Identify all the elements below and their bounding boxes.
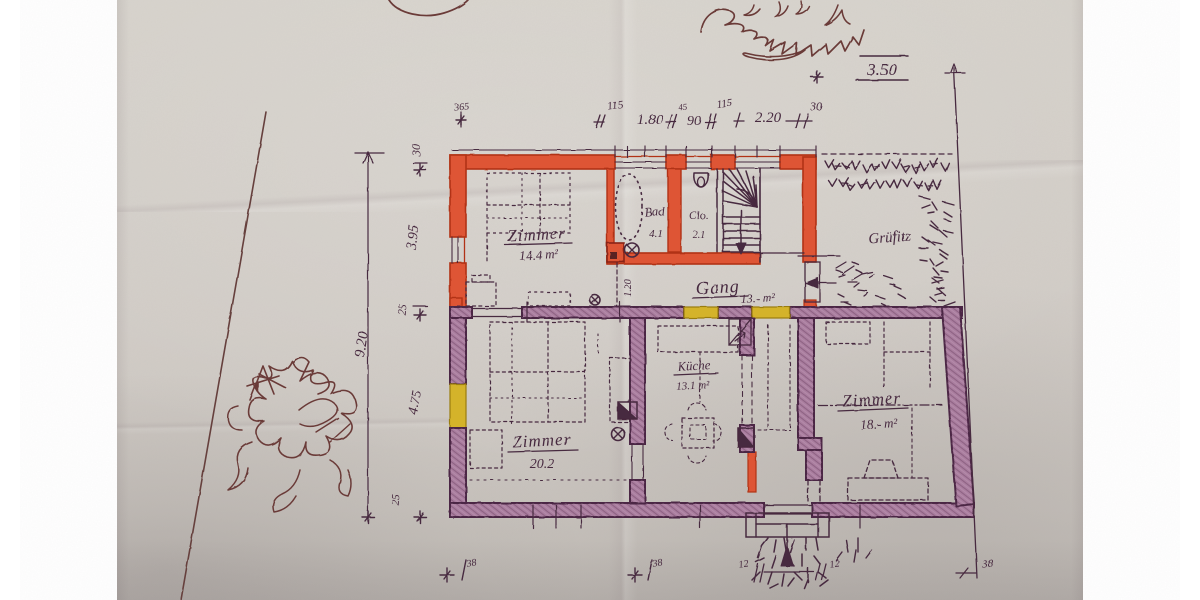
svg-text:2.1: 2.1 — [693, 230, 706, 241]
svg-text:38: 38 — [465, 557, 478, 570]
svg-text:14.4 m²: 14.4 m² — [519, 246, 560, 263]
svg-text:Zimmer: Zimmer — [512, 429, 572, 451]
svg-text:13.1 m²: 13.1 m² — [676, 379, 711, 393]
svg-text:90: 90 — [687, 114, 701, 129]
svg-text:12: 12 — [738, 558, 749, 570]
svg-text:Küche: Küche — [676, 357, 711, 374]
svg-text:1.80: 1.80 — [637, 112, 664, 128]
svg-text:30: 30 — [409, 144, 423, 157]
svg-text:Grüfitz: Grüfitz — [868, 229, 912, 248]
svg-text:38: 38 — [980, 557, 994, 571]
svg-text:115: 115 — [716, 97, 734, 111]
svg-text:25: 25 — [397, 303, 410, 315]
svg-text:Bad: Bad — [644, 204, 666, 219]
svg-text:2.20: 2.20 — [755, 110, 782, 126]
svg-text:45: 45 — [678, 102, 688, 113]
svg-text:Zimmer: Zimmer — [842, 388, 902, 410]
svg-text:12: 12 — [829, 558, 840, 570]
svg-text:38: 38 — [651, 557, 664, 570]
svg-text:115: 115 — [607, 99, 625, 113]
svg-text:3.95: 3.95 — [405, 225, 423, 252]
svg-text:3.50: 3.50 — [866, 60, 897, 79]
svg-text:20.2: 20.2 — [530, 457, 555, 472]
svg-text:Gang: Gang — [695, 276, 740, 298]
svg-text:25: 25 — [390, 493, 403, 505]
svg-text:1.20: 1.20 — [623, 279, 634, 297]
svg-text:4.1: 4.1 — [649, 228, 663, 240]
svg-text:Clo.: Clo. — [689, 209, 708, 222]
svg-text:13.- m²: 13.- m² — [740, 290, 775, 306]
svg-text:18.- m²: 18.- m² — [860, 415, 899, 432]
svg-text:30: 30 — [809, 99, 822, 113]
svg-text:Zimmer: Zimmer — [507, 223, 567, 245]
